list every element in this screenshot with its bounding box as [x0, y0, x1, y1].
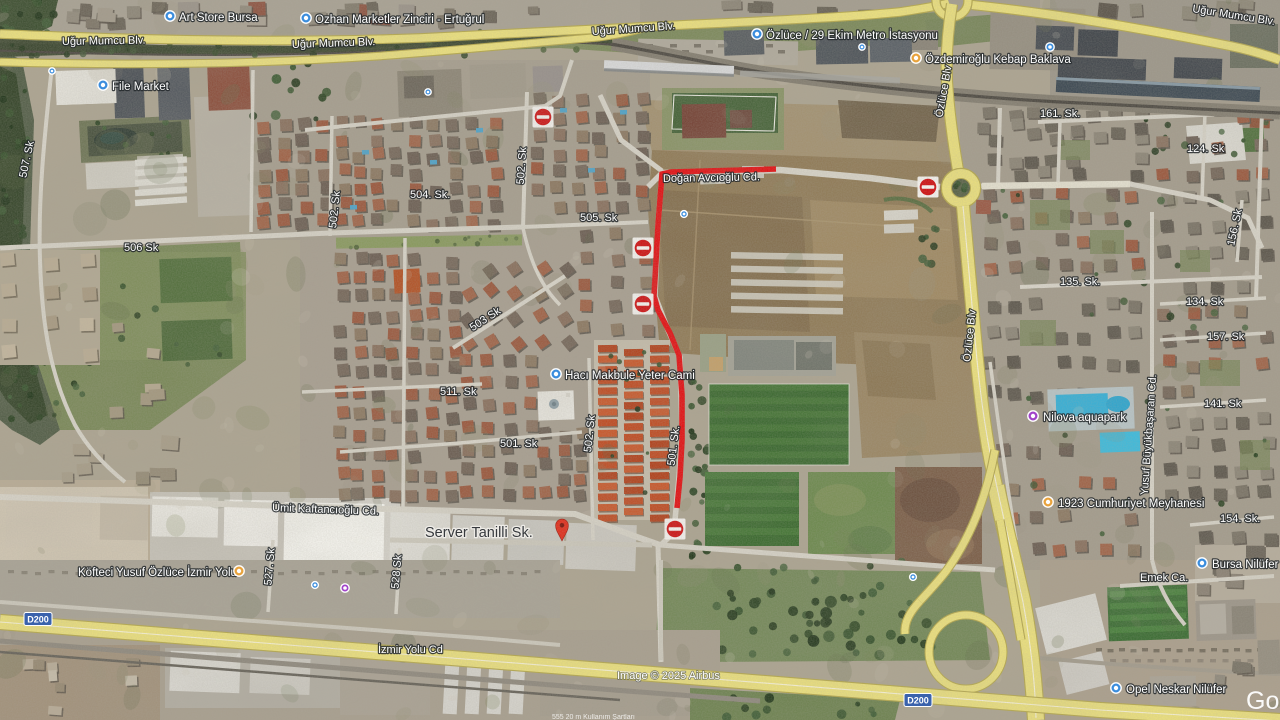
svg-text:Bursa Nilüfer Zeki M: Bursa Nilüfer Zeki M: [1212, 559, 1280, 571]
svg-text:511. Sk: 511. Sk: [440, 386, 477, 398]
svg-text:D200: D200: [907, 696, 929, 706]
svg-text:Özlüce / 29 Ekim Metro İstasyo: Özlüce / 29 Ekim Metro İstasyonu: [766, 29, 938, 42]
svg-text:Emek Ca.: Emek Ca.: [1140, 572, 1188, 584]
svg-text:505. Sk: 505. Sk: [580, 212, 618, 224]
svg-text:Image © 2025 Airbus: Image © 2025 Airbus: [617, 670, 720, 682]
svg-text:Opel Neskar Nilüfer: Opel Neskar Nilüfer: [1126, 684, 1227, 696]
svg-text:134. Sk: 134. Sk: [1186, 296, 1224, 308]
svg-text:D200: D200: [27, 615, 49, 625]
svg-text:Uğur Mumcu Blv.: Uğur Mumcu Blv.: [62, 35, 146, 48]
svg-text:Özdemiroğlu Kebap Baklava: Özdemiroğlu Kebap Baklava: [925, 54, 1071, 66]
svg-text:İzmir Yolu Cd: İzmir Yolu Cd: [378, 643, 443, 656]
svg-text:Ozhan Marketler Zinciri - Ertu: Ozhan Marketler Zinciri - Ertuğrul: [315, 14, 484, 26]
svg-text:Köfteci Yusuf Özlüce İzmir Yol: Köfteci Yusuf Özlüce İzmir Yolu: [78, 566, 237, 579]
svg-text:135. Sk.: 135. Sk.: [1060, 276, 1100, 288]
svg-text:157. Sk: 157. Sk: [1207, 331, 1245, 343]
svg-text:Go: Go: [1246, 687, 1279, 715]
svg-text:161. Sk.: 161. Sk.: [1040, 108, 1080, 120]
svg-text:124. Sk: 124. Sk: [1187, 143, 1225, 155]
svg-text:154. Sk.: 154. Sk.: [1220, 513, 1260, 525]
svg-text:Hacı Makbule Yeter Cami: Hacı Makbule Yeter Cami: [565, 370, 695, 382]
svg-text:Nilova aquapark: Nilova aquapark: [1043, 412, 1126, 424]
svg-text:1923 Cumhuriyet Meyhanesi: 1923 Cumhuriyet Meyhanesi: [1058, 498, 1204, 510]
svg-text:File Market: File Market: [112, 81, 170, 93]
svg-text:Server Tanilli Sk.: Server Tanilli Sk.: [425, 525, 533, 541]
svg-text:504. Sk.: 504. Sk.: [410, 189, 450, 201]
svg-text:555 20 m Kullanım Şartları: 555 20 m Kullanım Şartları: [552, 714, 635, 720]
svg-text:506 Sk: 506 Sk: [124, 242, 159, 254]
svg-text:Art Store Bursa: Art Store Bursa: [179, 12, 258, 24]
svg-text:Doğan Avcıoğlu Cd.: Doğan Avcıoğlu Cd.: [663, 171, 760, 185]
svg-text:141. Sk: 141. Sk: [1204, 398, 1242, 410]
svg-text:501. Sk: 501. Sk: [500, 438, 538, 450]
